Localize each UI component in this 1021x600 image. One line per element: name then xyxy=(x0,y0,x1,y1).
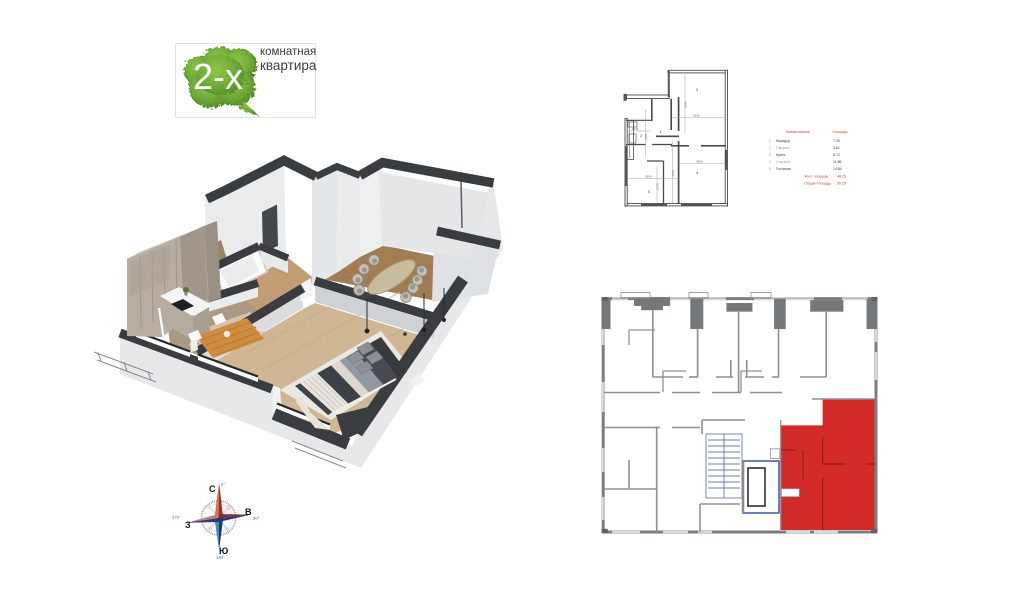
svg-text:4380: 4380 xyxy=(684,101,688,108)
svg-text:48.25: 48.25 xyxy=(837,175,846,179)
svg-text:2280: 2280 xyxy=(644,133,648,140)
svg-text:С: С xyxy=(209,484,216,494)
svg-text:Спальня: Спальня xyxy=(776,160,790,164)
svg-text:4440: 4440 xyxy=(671,170,675,177)
svg-text:Наименование: Наименование xyxy=(786,130,810,134)
svg-text:Кухня: Кухня xyxy=(776,153,785,157)
svg-text:2750: 2750 xyxy=(656,183,660,190)
svg-text:2600: 2600 xyxy=(645,175,652,179)
svg-text:180°: 180° xyxy=(216,555,225,560)
svg-text:3: 3 xyxy=(696,88,698,92)
svg-text:50.25: 50.25 xyxy=(837,182,846,186)
svg-text:В: В xyxy=(245,507,252,517)
svg-text:14.84: 14.84 xyxy=(833,167,842,171)
svg-text:Общая площадь: Общая площадь xyxy=(804,182,831,186)
svg-text:3520: 3520 xyxy=(693,114,700,118)
svg-text:4: 4 xyxy=(769,160,771,164)
svg-text:2: 2 xyxy=(769,146,771,150)
svg-text:5: 5 xyxy=(648,190,650,194)
svg-text:11.86: 11.86 xyxy=(833,160,842,164)
svg-text:0°: 0° xyxy=(221,482,225,487)
svg-text:Коридор: Коридор xyxy=(776,139,790,143)
svg-text:7.26: 7.26 xyxy=(833,139,840,143)
svg-text:3.61: 3.61 xyxy=(833,146,840,150)
svg-text:4: 4 xyxy=(696,171,698,175)
svg-text:8.72: 8.72 xyxy=(833,153,840,157)
svg-text:1: 1 xyxy=(660,130,662,134)
svg-text:Гостиная: Гостиная xyxy=(776,167,791,171)
svg-text:Санузел: Санузел xyxy=(776,146,790,150)
svg-text:5: 5 xyxy=(769,167,771,171)
svg-text:1400: 1400 xyxy=(632,127,639,131)
svg-text:3600: 3600 xyxy=(696,160,703,164)
svg-text:270°: 270° xyxy=(172,515,181,520)
svg-text:90°: 90° xyxy=(253,516,260,521)
svg-text:2: 2 xyxy=(640,134,642,138)
svg-text:3: 3 xyxy=(769,153,771,157)
svg-text:З: З xyxy=(185,520,191,530)
svg-text:Жил. площадь: Жил. площадь xyxy=(804,175,828,179)
svg-text:1: 1 xyxy=(769,139,771,143)
svg-text:Площадь: Площадь xyxy=(832,130,847,134)
